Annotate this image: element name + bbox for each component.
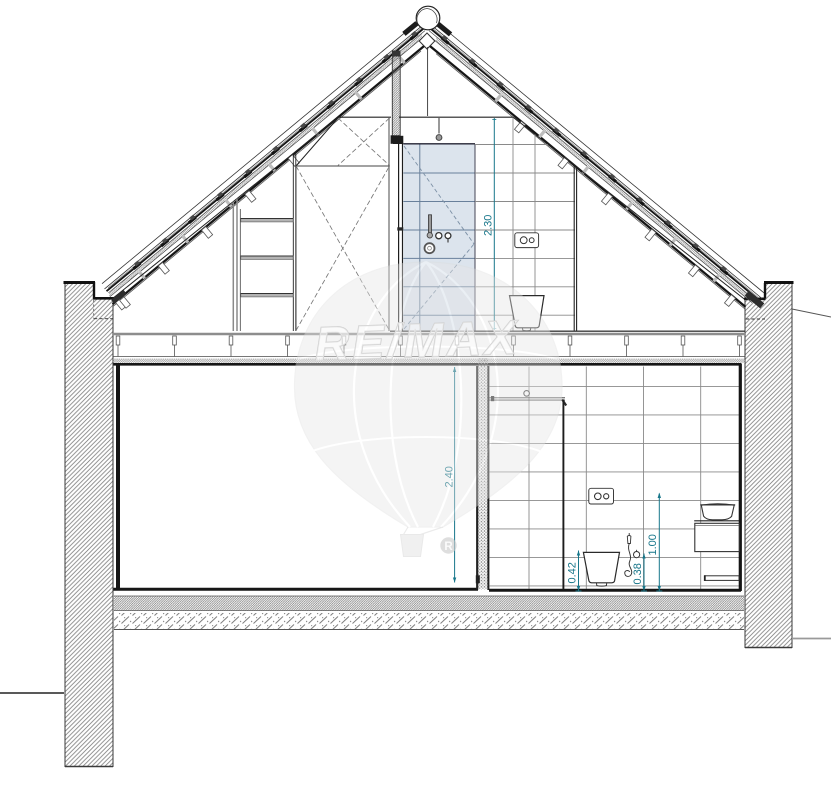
svg-text:0.42: 0.42	[566, 562, 578, 583]
svg-text:2.30: 2.30	[483, 215, 495, 236]
svg-text:0.38: 0.38	[632, 563, 644, 584]
svg-text:1.00: 1.00	[647, 534, 659, 555]
svg-text:R: R	[444, 541, 453, 553]
svg-text:RE/MAX: RE/MAX	[314, 311, 520, 371]
